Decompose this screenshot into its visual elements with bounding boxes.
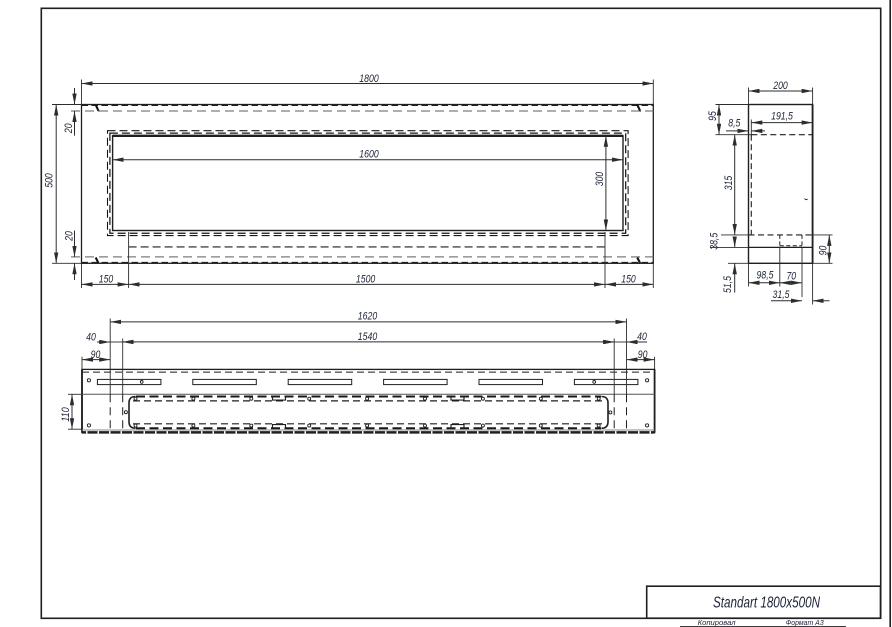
svg-text:1540: 1540 bbox=[358, 331, 377, 343]
svg-text:315: 315 bbox=[723, 175, 735, 190]
svg-text:200: 200 bbox=[772, 80, 787, 92]
svg-text:40: 40 bbox=[86, 332, 96, 344]
svg-text:70: 70 bbox=[786, 271, 796, 283]
svg-text:8,5: 8,5 bbox=[728, 118, 741, 130]
svg-text:300: 300 bbox=[594, 172, 606, 187]
svg-text:150: 150 bbox=[99, 274, 114, 286]
svg-text:Standart 1800x500N: Standart 1800x500N bbox=[713, 595, 820, 612]
svg-text:90: 90 bbox=[638, 349, 648, 361]
svg-text:1500: 1500 bbox=[356, 274, 375, 286]
svg-text:90: 90 bbox=[817, 246, 829, 256]
svg-text:1800: 1800 bbox=[359, 73, 378, 85]
svg-text:51,5: 51,5 bbox=[722, 275, 734, 293]
svg-text:191,5: 191,5 bbox=[771, 110, 794, 122]
svg-text:1600: 1600 bbox=[359, 149, 378, 161]
svg-text:Копировал: Копировал bbox=[698, 618, 737, 627]
svg-text:95: 95 bbox=[707, 110, 719, 120]
svg-text:20: 20 bbox=[63, 123, 75, 134]
svg-text:20: 20 bbox=[64, 231, 76, 242]
svg-text:90: 90 bbox=[91, 349, 101, 361]
svg-text:40: 40 bbox=[637, 331, 647, 343]
svg-text:110: 110 bbox=[60, 407, 72, 422]
svg-text:150: 150 bbox=[621, 274, 636, 286]
svg-text:1620: 1620 bbox=[358, 310, 377, 322]
svg-text:98,5: 98,5 bbox=[757, 270, 775, 282]
svg-text:38,5: 38,5 bbox=[708, 232, 720, 250]
svg-text:Формат A3: Формат A3 bbox=[786, 618, 825, 627]
svg-text:31,5: 31,5 bbox=[773, 289, 791, 301]
svg-text:500: 500 bbox=[43, 173, 55, 188]
